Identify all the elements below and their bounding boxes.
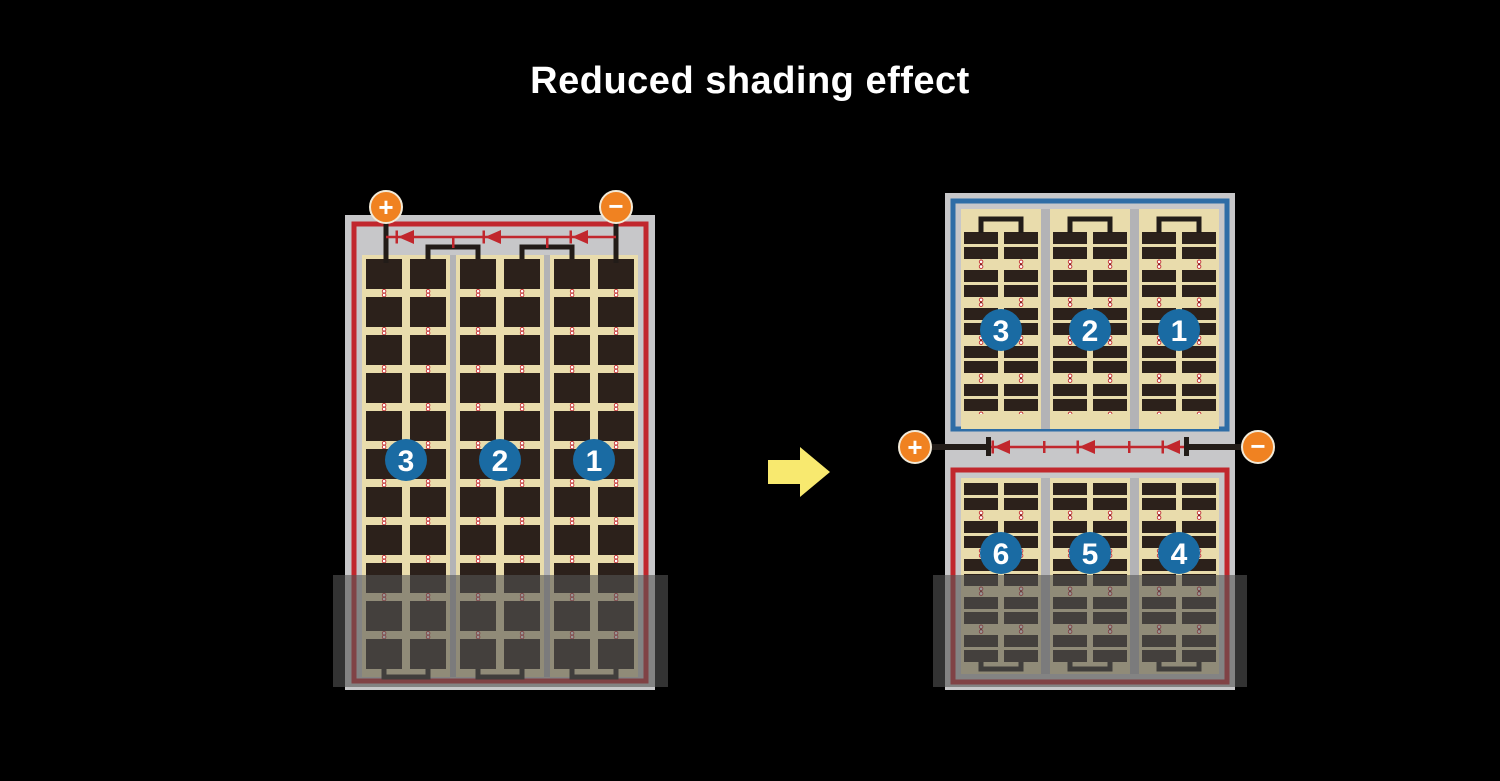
positive-terminal-badge: + [370,191,402,223]
string-badge: 1 [1158,309,1200,351]
svg-text:4: 4 [1171,538,1188,571]
svg-text:3: 3 [993,315,1010,348]
svg-text:2: 2 [1082,315,1099,348]
svg-text:6: 6 [993,538,1010,571]
center-junction [931,436,1242,463]
string-badge: 3 [980,309,1022,351]
svg-text:3: 3 [398,445,415,478]
svg-text:1: 1 [1171,315,1188,348]
string-badge: 4 [1158,532,1200,574]
svg-text:5: 5 [1082,538,1099,571]
string-badge: 3 [385,439,427,481]
plus-icon: + [907,432,922,462]
negative-terminal-badge: − [600,191,632,223]
string-badge: 6 [980,532,1022,574]
page-title: Reduced shading effect [0,60,1500,103]
minus-icon: − [1250,431,1265,461]
right-panel-figure: 3 2 1 [876,175,1286,705]
svg-text:1: 1 [586,445,603,478]
string-badge: 1 [573,439,615,481]
top-half-module: 3 2 1 [945,193,1235,437]
plus-icon: + [378,192,393,222]
positive-terminal-badge: + [899,431,931,463]
string-badge: 5 [1069,532,1111,574]
transition-arrow-icon [760,440,840,510]
minus-icon: − [608,191,623,221]
left-panel-figure: + − 3 2 1 [320,185,680,705]
negative-terminal-badge: − [1242,431,1274,463]
string-badge: 2 [1069,309,1111,351]
shading-overlay [933,575,1247,687]
shading-overlay [333,575,668,687]
svg-text:2: 2 [492,445,509,478]
string-badge: 2 [479,439,521,481]
